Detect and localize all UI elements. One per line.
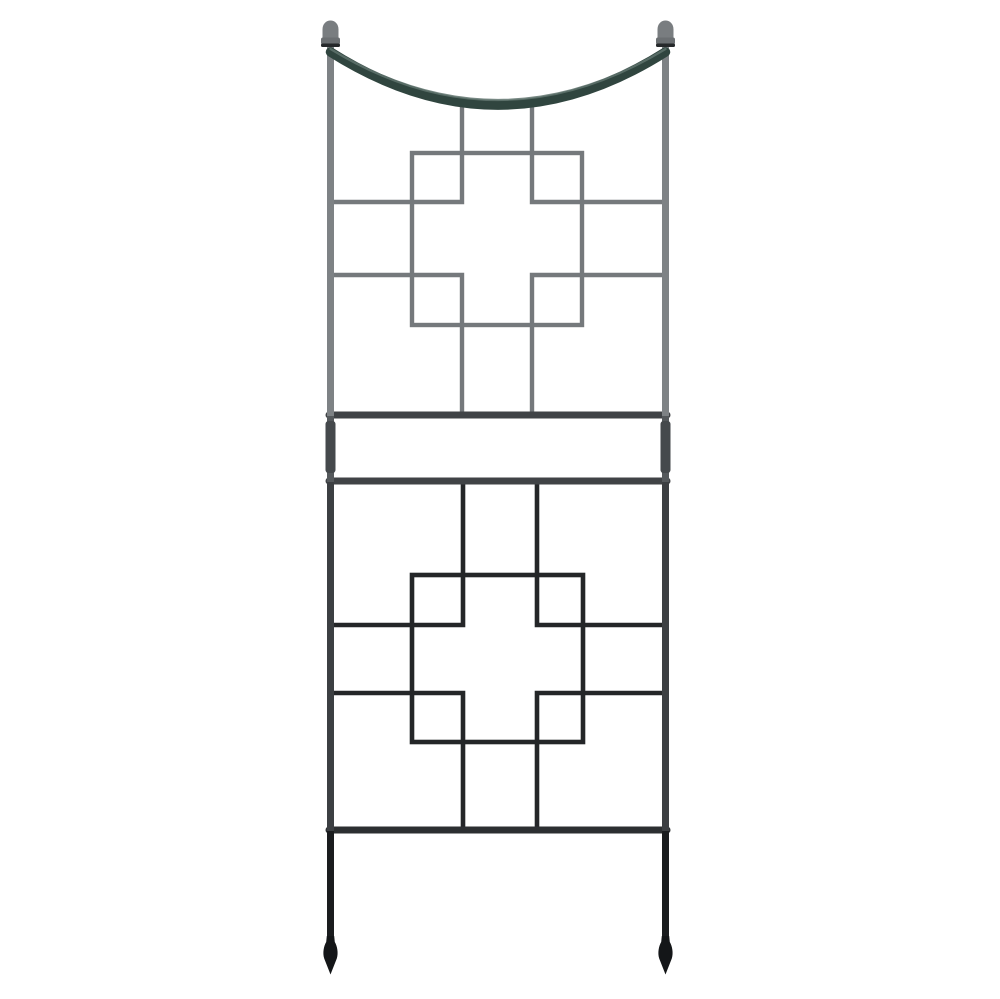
lower-lattice-panel [330, 481, 666, 830]
left-post [326, 46, 336, 939]
lattice-bar [532, 99, 666, 202]
finial-cap [656, 38, 675, 45]
finial-cap [321, 38, 340, 45]
post-leg [327, 831, 334, 939]
left-finial [321, 21, 340, 48]
lattice-bar [330, 693, 463, 830]
right-foot [658, 936, 672, 975]
post-segment [327, 482, 334, 831]
lattice-square [412, 575, 583, 742]
product-image [0, 0, 1000, 999]
lattice-bar [532, 275, 666, 415]
lattice-square [412, 153, 582, 325]
lattice-bar [537, 693, 666, 830]
lattice-bar [330, 275, 462, 415]
trellis-photo [0, 0, 1000, 999]
arch-bar [331, 52, 666, 105]
post-segment [662, 46, 669, 416]
upper-lattice-panel [330, 99, 666, 415]
right-post [661, 46, 671, 939]
finial-ball [323, 21, 339, 39]
top-arch [331, 49, 666, 105]
lattice-bar [330, 481, 463, 625]
lattice-bar [537, 481, 666, 625]
finial-band [656, 44, 675, 48]
finial-ball [658, 21, 674, 39]
post-segment [327, 46, 334, 416]
right-finial [656, 21, 675, 48]
arch-highlight [331, 49, 666, 100]
post-segment [662, 482, 669, 831]
finial-band [321, 44, 340, 48]
lattice-bar [330, 99, 462, 202]
coupling-sleeve [326, 421, 336, 473]
post-leg [662, 831, 669, 939]
left-foot [323, 936, 337, 975]
coupling-sleeve [661, 421, 671, 473]
